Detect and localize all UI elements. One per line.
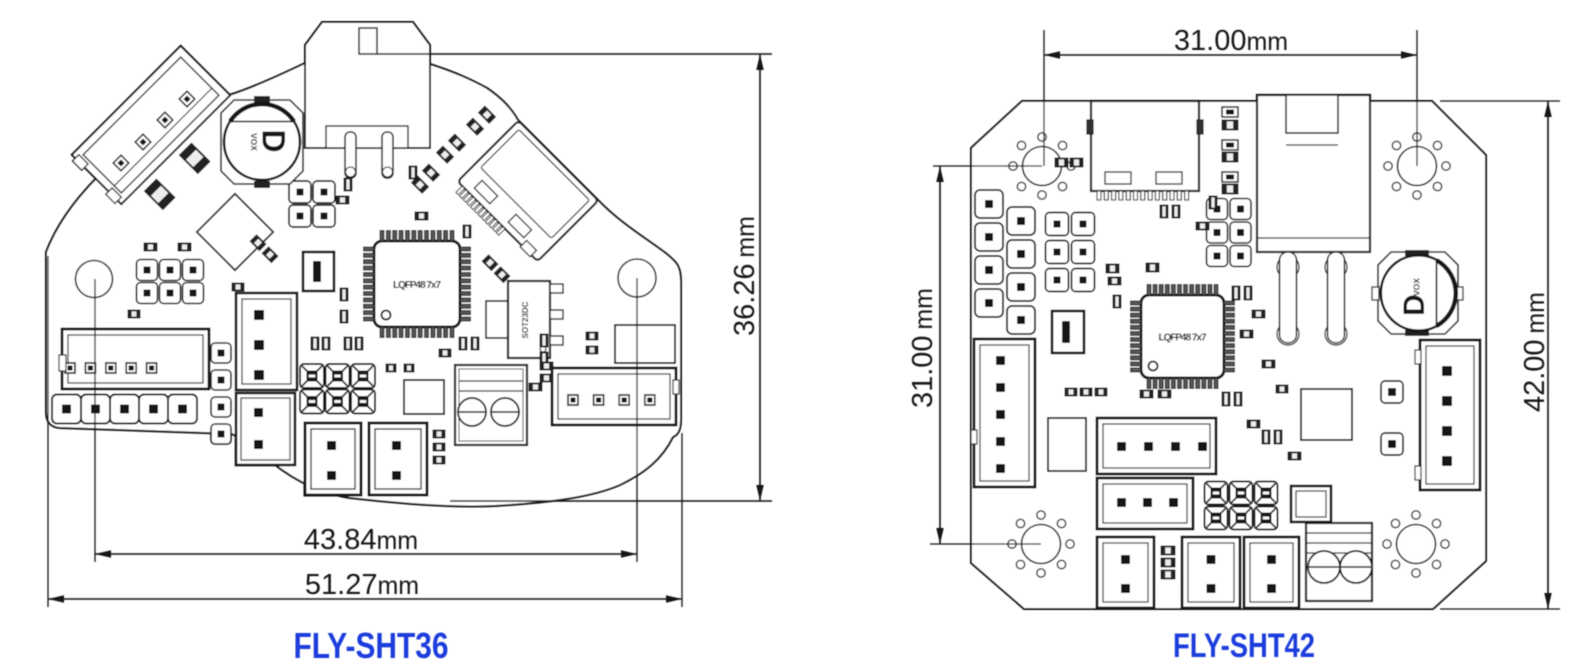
svg-text:FLY-SHT42: FLY-SHT42 [1173, 627, 1315, 662]
svg-text:VOX: VOX [249, 133, 259, 151]
svg-text:D: D [1398, 294, 1431, 316]
svg-text:31.00mm: 31.00mm [1174, 25, 1288, 57]
svg-text:LQFP48 7x7: LQFP48 7x7 [393, 280, 441, 291]
svg-text:31.00 mm: 31.00 mm [907, 288, 939, 408]
svg-text:43.84mm: 43.84mm [304, 524, 418, 556]
svg-text:42.00 mm: 42.00 mm [1519, 292, 1551, 412]
svg-text:D: D [256, 129, 292, 152]
svg-text:51.27mm: 51.27mm [305, 569, 419, 601]
svg-text:36.26 mm: 36.26 mm [729, 216, 761, 336]
svg-text:VOX: VOX [1411, 278, 1421, 296]
svg-text:LQFP48 7x7: LQFP48 7x7 [1159, 333, 1207, 344]
svg-text:FLY-SHT36: FLY-SHT36 [294, 625, 449, 662]
svg-text:SOT23DC: SOT23DC [521, 301, 530, 338]
